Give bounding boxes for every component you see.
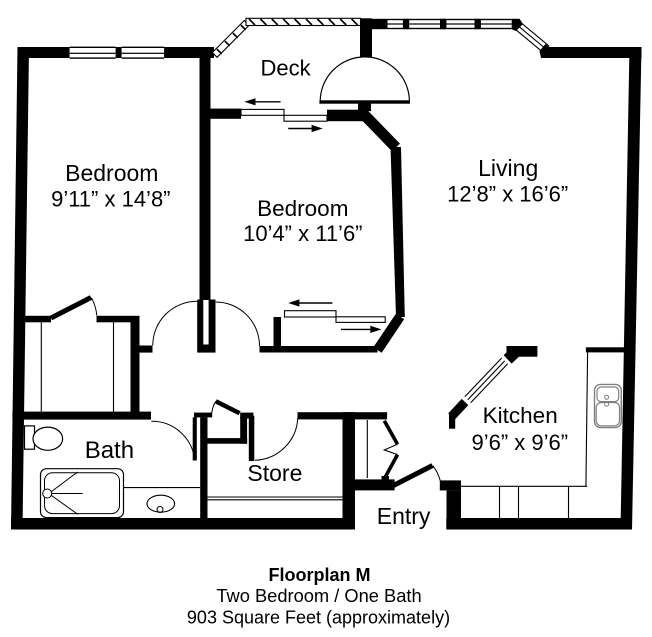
svg-text:10’4” x 11’6”: 10’4” x 11’6” xyxy=(243,221,362,246)
svg-text:Deck: Deck xyxy=(261,56,312,81)
svg-text:9’6” x 9’6”: 9’6” x 9’6” xyxy=(472,430,569,455)
svg-text:12’8” x 16’6”: 12’8” x 16’6” xyxy=(447,182,568,207)
svg-text:Store: Store xyxy=(247,460,302,486)
svg-text:Two Bedroom / One Bath: Two Bedroom / One Bath xyxy=(216,585,421,606)
svg-text:Living: Living xyxy=(478,155,538,181)
svg-text:903 Square Feet (approximately: 903 Square Feet (approximately) xyxy=(187,608,450,628)
svg-text:Entry: Entry xyxy=(377,503,431,529)
svg-text:Bath: Bath xyxy=(85,437,134,464)
svg-text:Bedroom: Bedroom xyxy=(257,196,348,221)
svg-text:9’11” x 14’8”: 9’11” x 14’8” xyxy=(51,187,170,212)
svg-text:Floorplan M: Floorplan M xyxy=(269,565,371,585)
svg-text:Kitchen: Kitchen xyxy=(483,403,558,428)
svg-text:Bedroom: Bedroom xyxy=(65,160,158,186)
